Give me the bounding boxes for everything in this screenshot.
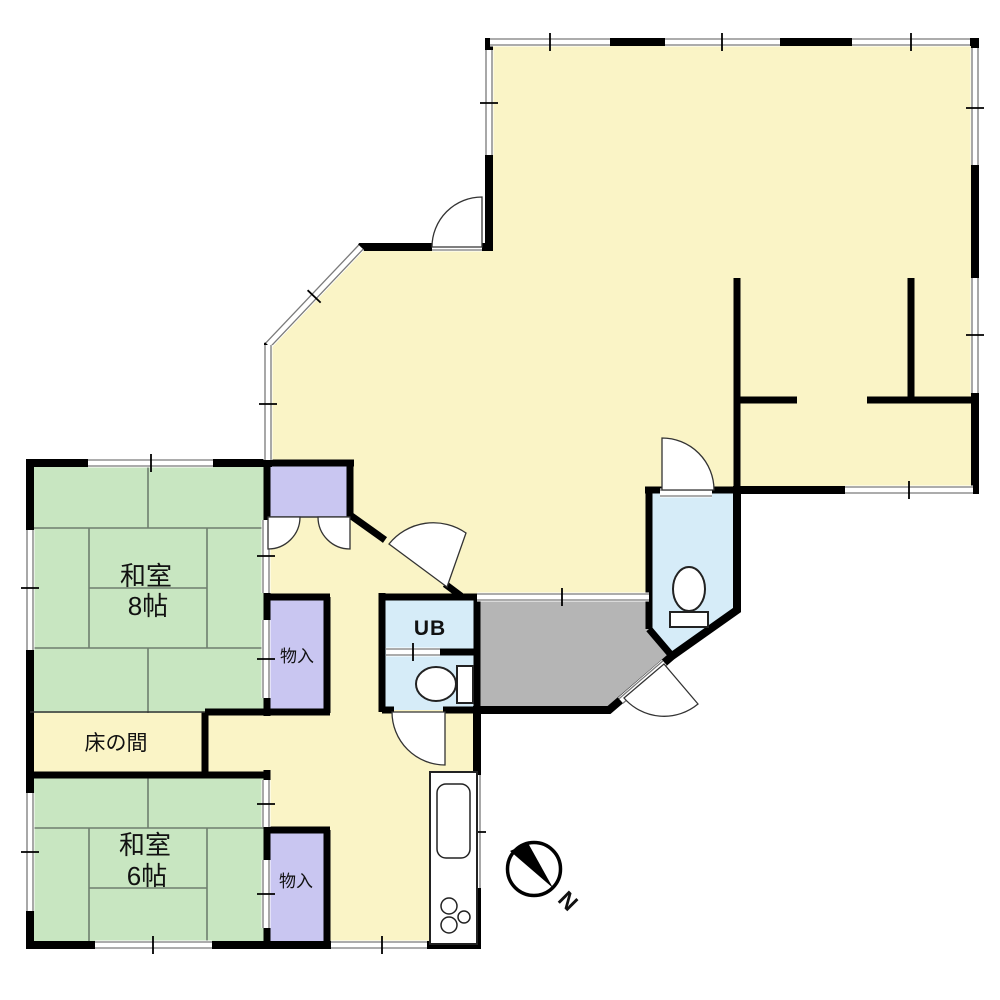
kitchen-sink: [437, 784, 470, 858]
washitsu8-name-label: 和室: [120, 561, 172, 591]
floor-plan-drawing: 和室 8帖 和室 6帖 床の間 物入 物入 UB N: [0, 0, 1000, 1000]
door-balcony: [432, 197, 482, 247]
washitsu8-size-label: 8帖: [128, 591, 168, 621]
north-label: N: [553, 886, 583, 916]
tokonoma-label: 床の間: [85, 732, 148, 755]
toilet-icon-left: [416, 666, 473, 703]
closet-upper: [268, 465, 350, 517]
storage-lower-label: 物入: [279, 872, 313, 891]
toilet-icon-right: [670, 567, 708, 627]
kitchen-counter: [430, 772, 477, 944]
washitsu6-name-label: 和室: [119, 830, 171, 860]
storage-mid-label: 物入: [280, 647, 314, 666]
floor-plan-page: 和室 8帖 和室 6帖 床の間 物入 物入 UB N: [0, 0, 1000, 1000]
unit-bath-label: UB: [414, 617, 446, 640]
compass-icon: N: [508, 843, 584, 916]
washitsu6-size-label: 6帖: [127, 861, 167, 891]
